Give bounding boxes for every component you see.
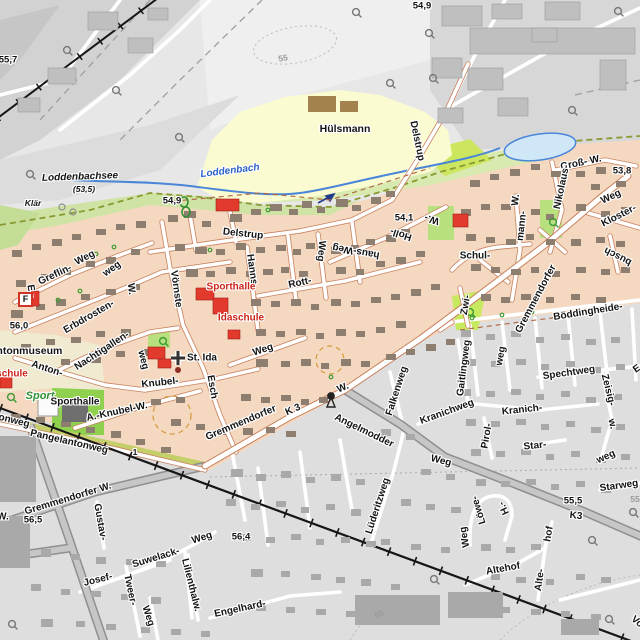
poi-label-idaschule: Idaschule bbox=[218, 313, 264, 324]
elevation-label: 54,9 bbox=[163, 196, 182, 207]
map-basemap bbox=[0, 0, 640, 640]
elevation-label: 55,5 bbox=[564, 496, 583, 507]
lake-elevation-label: (53,5) bbox=[73, 184, 95, 194]
railway-km-marker: 1 bbox=[133, 447, 138, 457]
elevation-label: 56,4 bbox=[232, 532, 251, 543]
poi-label-schule: schule bbox=[0, 369, 28, 380]
fire-station-sign: F bbox=[18, 292, 33, 307]
road-number-k3: K3 bbox=[569, 510, 583, 522]
farm-label-huelsmann: Hülsmann bbox=[320, 123, 371, 135]
elevation-label: 56,0 bbox=[10, 321, 29, 332]
street-label-w: W. bbox=[510, 194, 522, 207]
sewage-plant-label: Klär bbox=[25, 198, 42, 208]
contour-label: 55 bbox=[277, 52, 288, 63]
church-label-st-ida: St. Ida bbox=[187, 353, 217, 364]
poi-label-sporthalle: Sporthalle bbox=[51, 397, 100, 408]
poi-dot bbox=[175, 367, 181, 373]
elevation-label: 54,9 bbox=[413, 1, 432, 12]
street-label-w: W. bbox=[0, 512, 9, 523]
map-canvas[interactable]: 55,7 54,9 54,9 54,1 53,8 56,0 56,5 56,4 … bbox=[0, 0, 640, 640]
poi-label-sporthalle: Sporthalle bbox=[207, 282, 256, 293]
elevation-label: 55,7 bbox=[0, 55, 17, 66]
contour-label: 55 bbox=[630, 494, 639, 504]
street-label-w: W. bbox=[125, 283, 137, 296]
elevation-label: 53,8 bbox=[613, 166, 632, 177]
street-label-schul: Schul- bbox=[460, 251, 491, 262]
elevation-label: 54,1 bbox=[395, 213, 414, 224]
street-label-weg: Weg bbox=[315, 240, 328, 262]
poi-label-museum: lantonmuseum bbox=[0, 345, 62, 357]
